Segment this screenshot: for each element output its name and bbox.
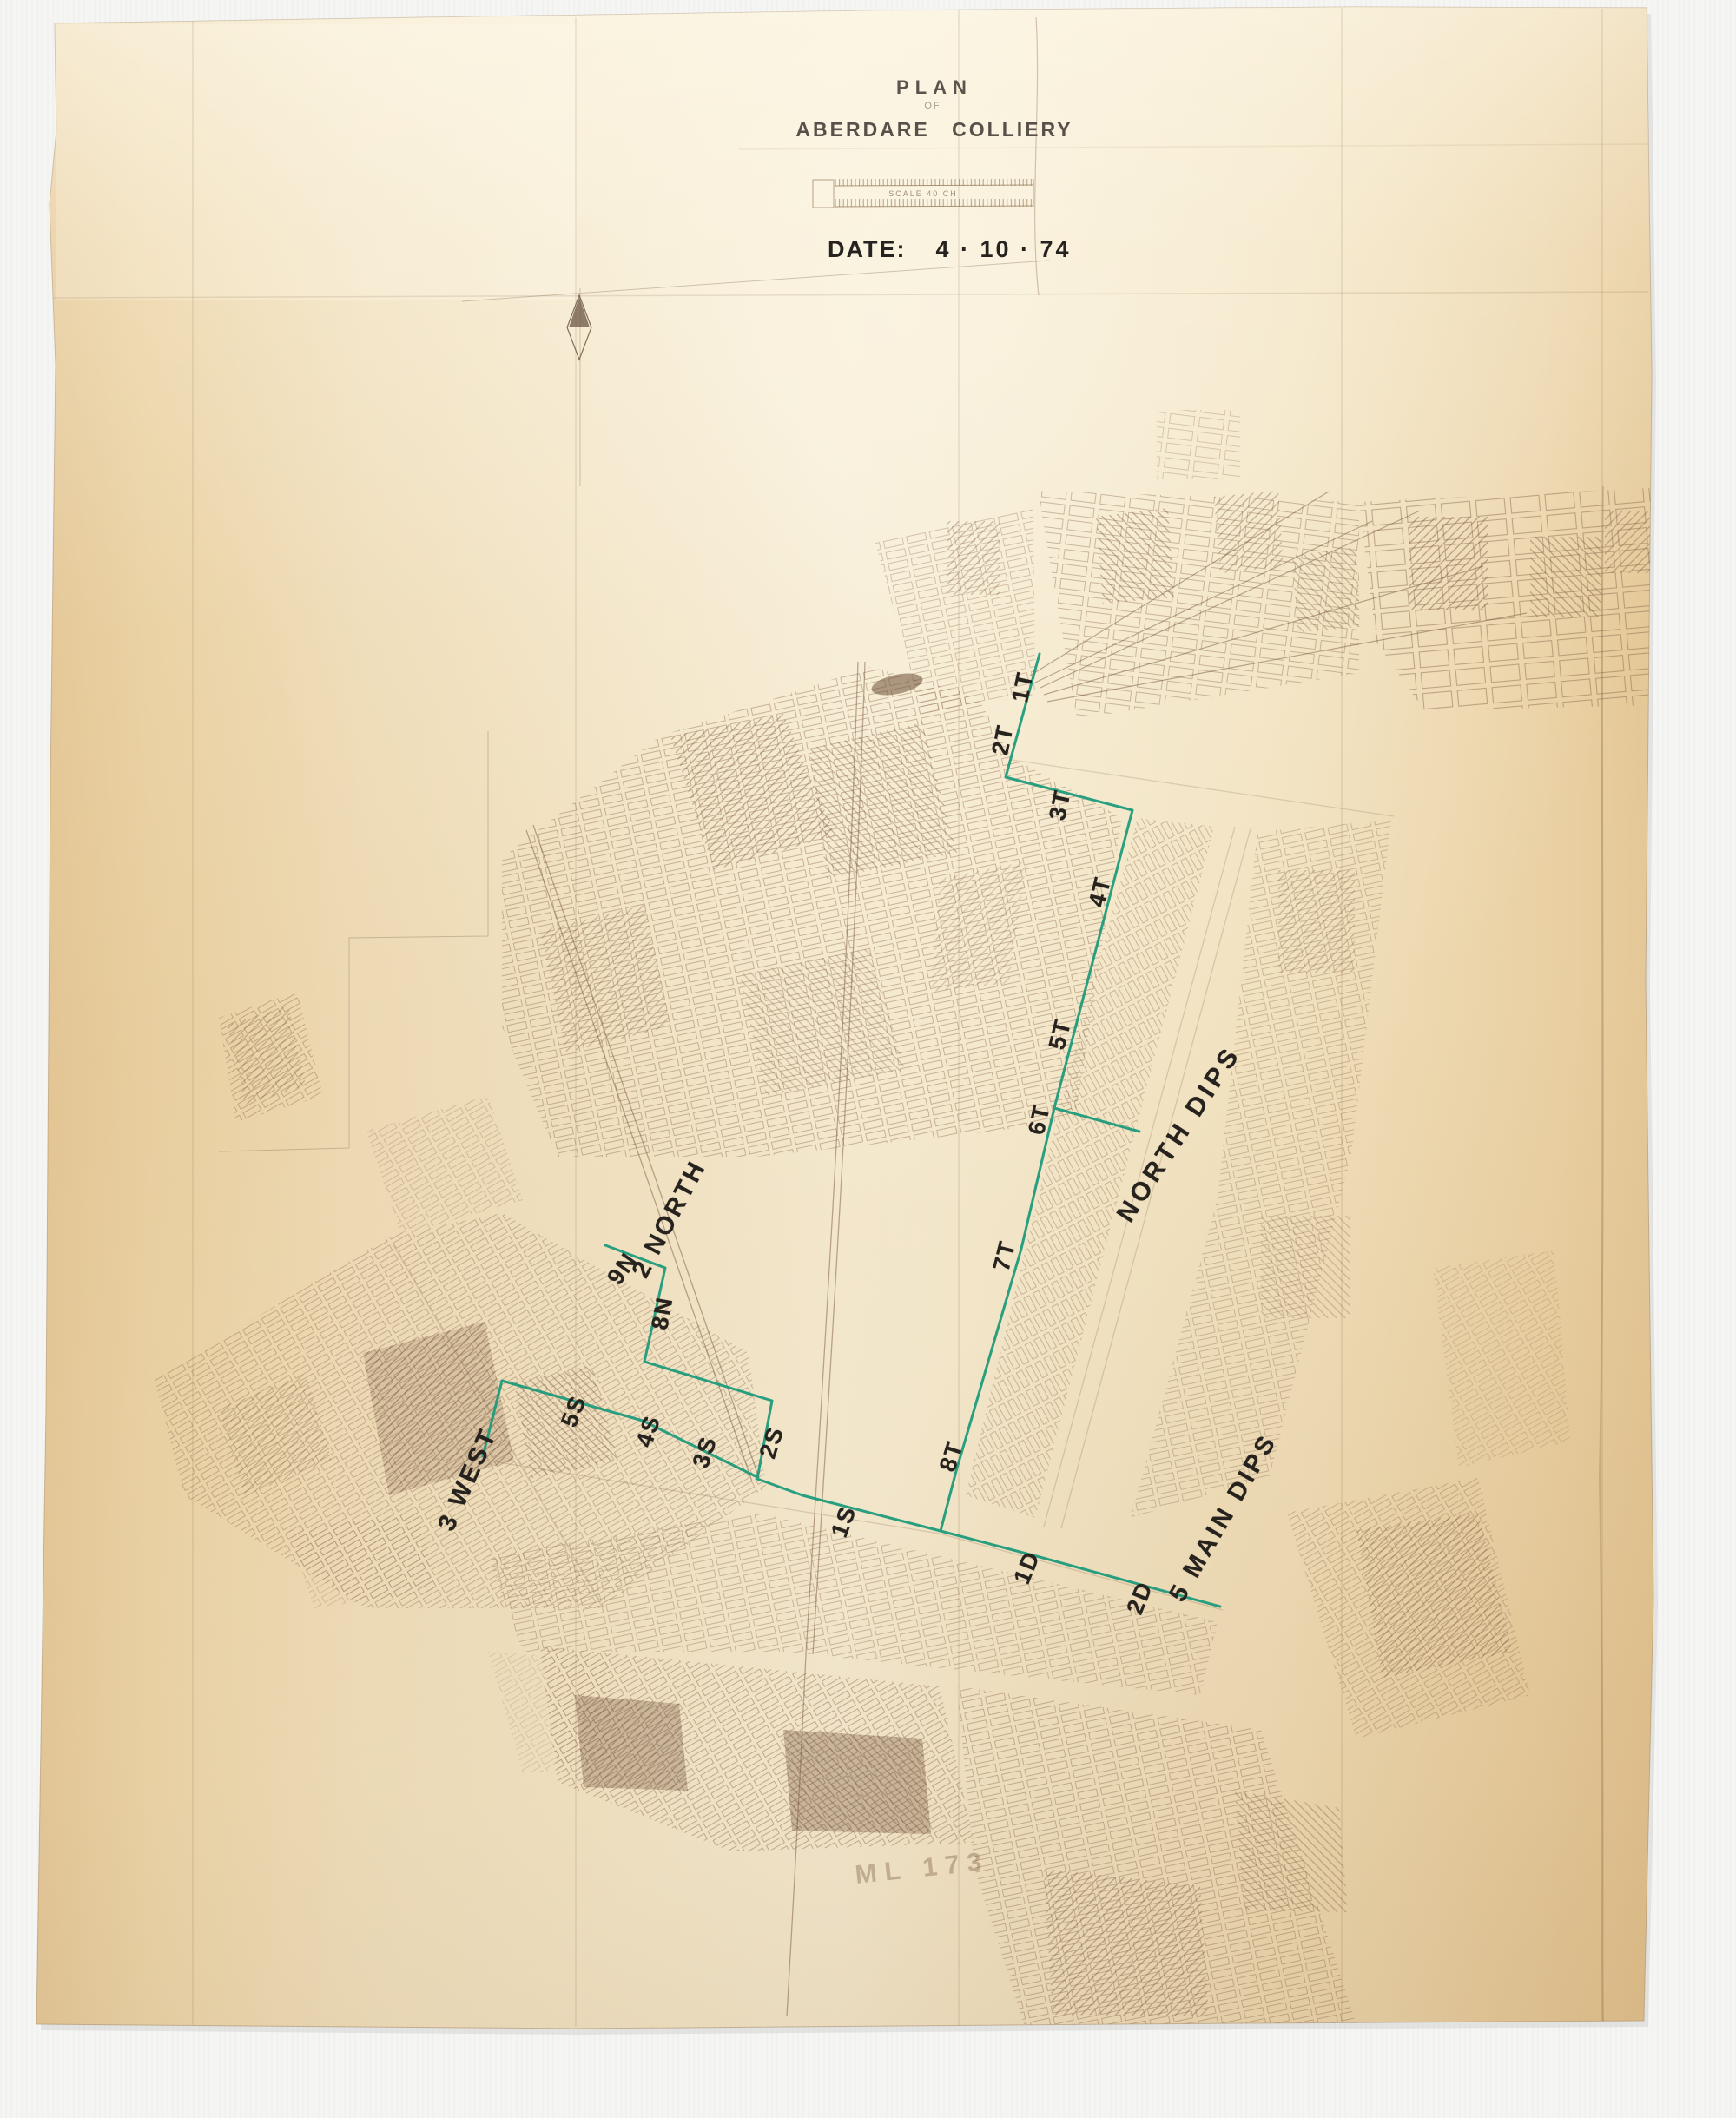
scale-caption: SCALE 40 CH <box>888 189 958 198</box>
plan-drawing: SCALE 40 CH <box>0 0 1736 2118</box>
scanned-colliery-plan: SCALE 40 CH PLAN OF ABERDARE COLLIERY DA… <box>0 0 1736 2118</box>
